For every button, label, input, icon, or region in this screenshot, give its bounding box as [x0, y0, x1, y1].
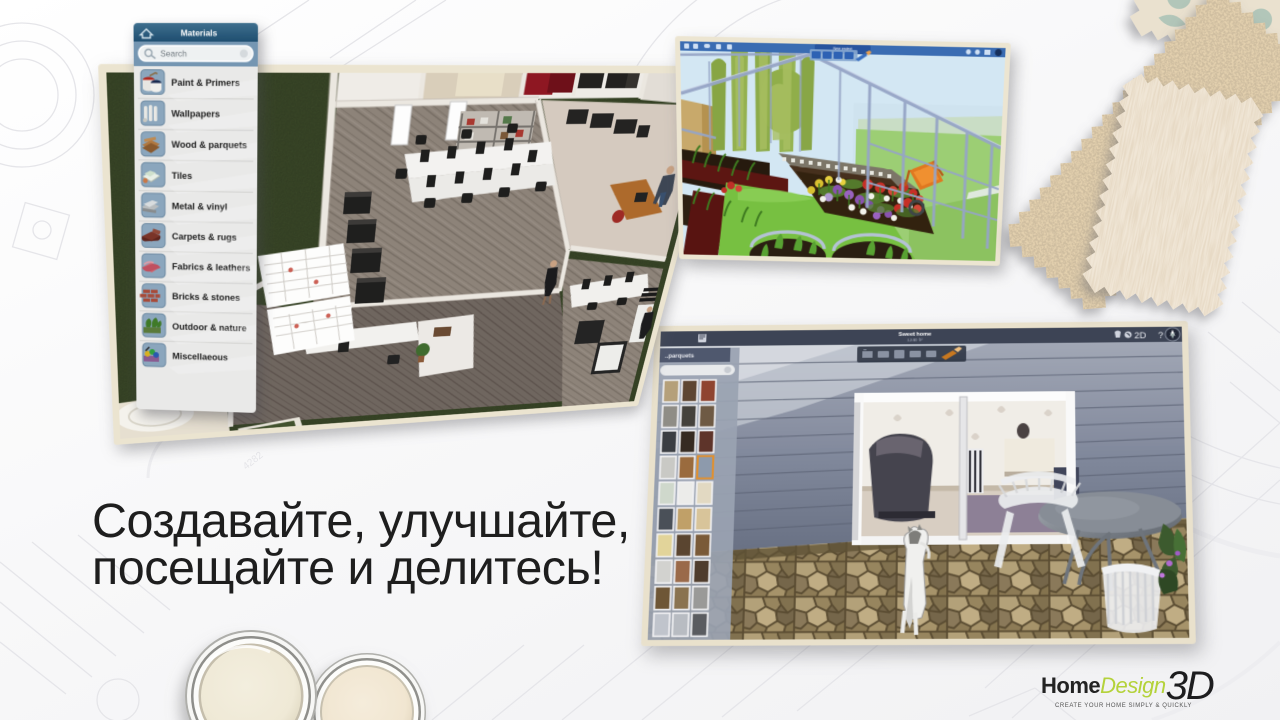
- svg-text:1240 ft²: 1240 ft²: [907, 337, 923, 342]
- svg-text:4282: 4282: [241, 450, 266, 473]
- svg-text:Search: Search: [160, 48, 187, 58]
- svg-text:..parquets: ..parquets: [665, 353, 694, 359]
- svg-text:Wallpapers: Wallpapers: [171, 109, 220, 120]
- svg-text:Materials: Materials: [181, 28, 218, 38]
- svg-text:Tiles: Tiles: [172, 171, 193, 181]
